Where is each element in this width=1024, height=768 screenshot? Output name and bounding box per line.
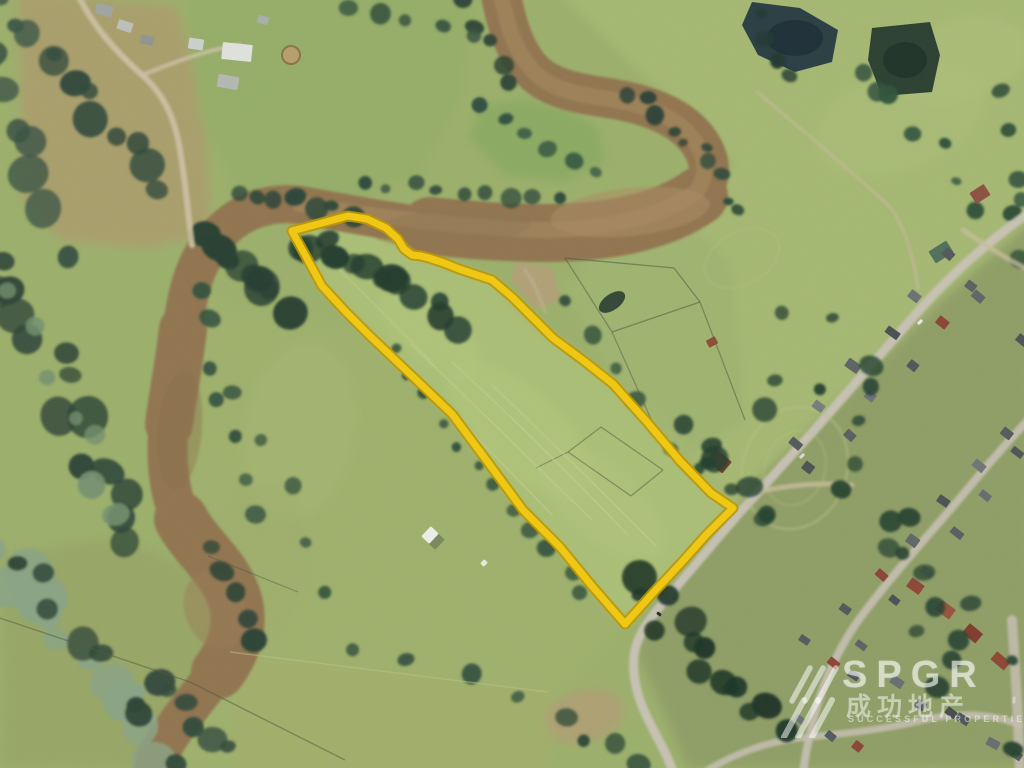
aerial-scene: [0, 0, 1024, 768]
aerial-property-photo: SPGR 成功地产 SUCCESSFUL PROPERTIES: [0, 0, 1024, 768]
scene-layers: [0, 0, 1024, 768]
layer-grain: [0, 0, 1024, 768]
